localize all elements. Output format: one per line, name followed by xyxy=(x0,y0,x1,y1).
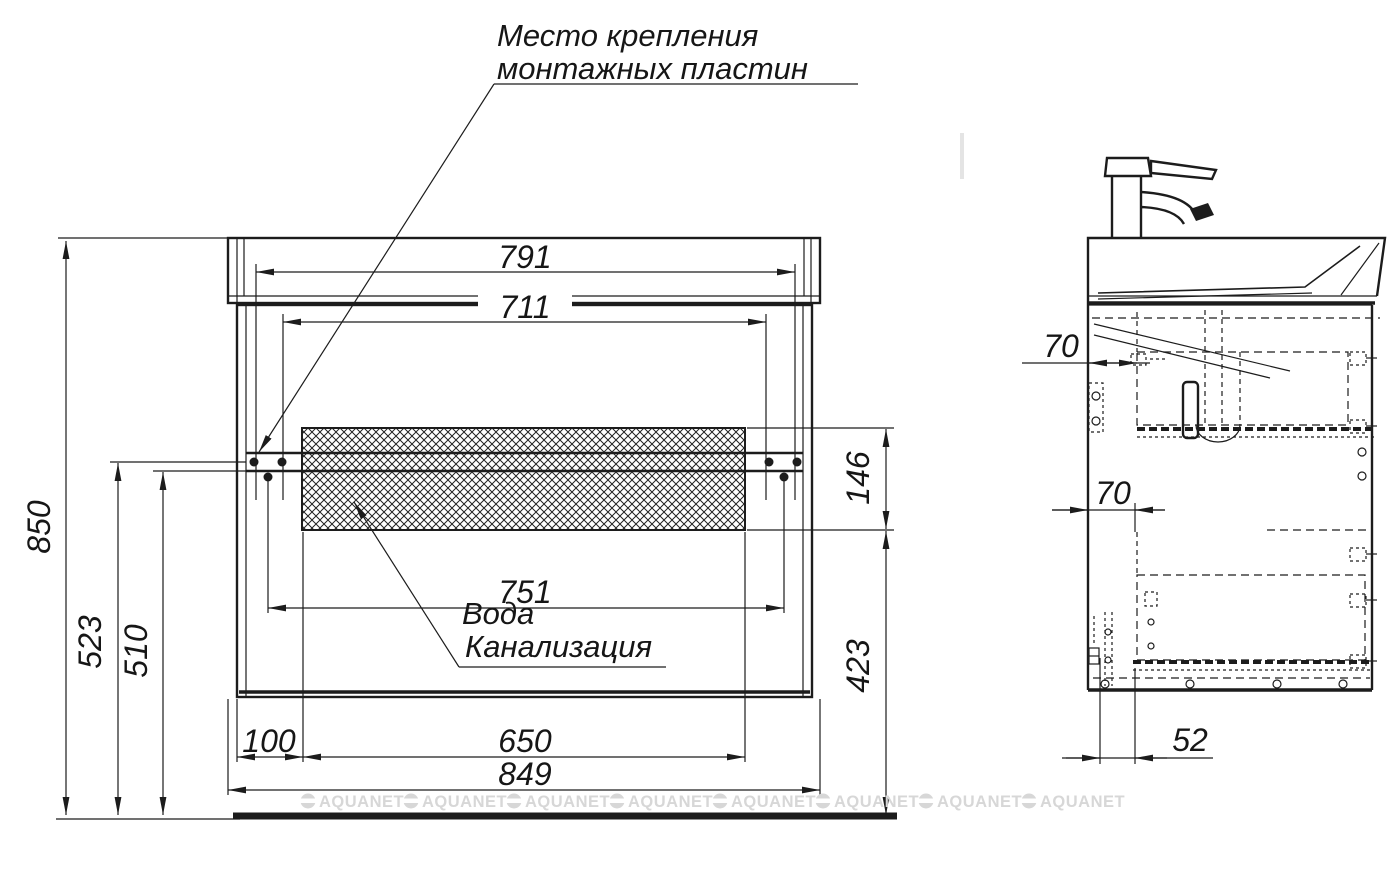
watermark-text: AQUANET xyxy=(628,793,713,811)
technical-drawing: 791 711 751 650 100 849 850 523 510 146 … xyxy=(0,0,1400,893)
scan-artifact xyxy=(960,133,964,179)
mounting-leader-line xyxy=(259,84,494,452)
dim-523-label: 523 xyxy=(72,615,108,669)
watermark-text: AQUANET xyxy=(937,793,1022,811)
ground-line xyxy=(56,816,897,819)
watermarks: AQUANET AQUANET AQUANET AQUANET AQUANET … xyxy=(300,793,1125,811)
side-view xyxy=(1088,158,1385,690)
side-hidden-details xyxy=(1089,310,1380,688)
watermark: AQUANET xyxy=(712,793,816,811)
dim-650-label: 650 xyxy=(498,723,552,759)
front-view xyxy=(56,238,897,819)
watermark: AQUANET xyxy=(300,793,404,811)
watermark-text: AQUANET xyxy=(731,793,816,811)
watermark-text: AQUANET xyxy=(1040,793,1125,811)
watermark-text: AQUANET xyxy=(525,793,610,811)
dim-711-label: 711 xyxy=(499,289,550,325)
watermark: AQUANET xyxy=(403,793,507,811)
watermark: AQUANET xyxy=(609,793,713,811)
watermark: AQUANET xyxy=(506,793,610,811)
note-sewage: Канализация xyxy=(465,629,652,664)
faucet xyxy=(1105,158,1216,238)
watermark: AQUANET xyxy=(1021,793,1125,811)
dim-510-label: 510 xyxy=(118,624,154,678)
watermark: AQUANET xyxy=(815,793,919,811)
drawing-page: 791 711 751 650 100 849 850 523 510 146 … xyxy=(0,0,1400,893)
watermark-text: AQUANET xyxy=(834,793,919,811)
note-water: Вода xyxy=(462,596,534,631)
watermark: AQUANET xyxy=(918,793,1022,811)
side-washbasin xyxy=(1088,238,1385,303)
faucet-aerator xyxy=(1190,203,1214,221)
dim-100-label: 100 xyxy=(242,723,296,759)
dim-52-label: 52 xyxy=(1172,722,1208,758)
dim-70-mid-label: 70 xyxy=(1095,475,1131,511)
dim-849-label: 849 xyxy=(498,756,552,792)
dim-70-top-label: 70 xyxy=(1043,328,1079,364)
dim-146-label: 146 xyxy=(840,451,876,505)
note-mounting-line2: монтажных пластин xyxy=(497,51,808,86)
hatched-opening xyxy=(302,428,745,530)
leader-notes: Место крепления монтажных пластин Вода К… xyxy=(259,18,858,667)
watermark-text: AQUANET xyxy=(422,793,507,811)
watermark-text: AQUANET xyxy=(319,793,404,811)
side-dimensions: 70 70 52 xyxy=(1022,328,1213,764)
note-mounting-line1: Место крепления xyxy=(497,18,758,53)
dim-850-label: 850 xyxy=(21,500,57,554)
dim-423-label: 423 xyxy=(840,639,876,693)
dim-791-label: 791 xyxy=(498,239,551,275)
